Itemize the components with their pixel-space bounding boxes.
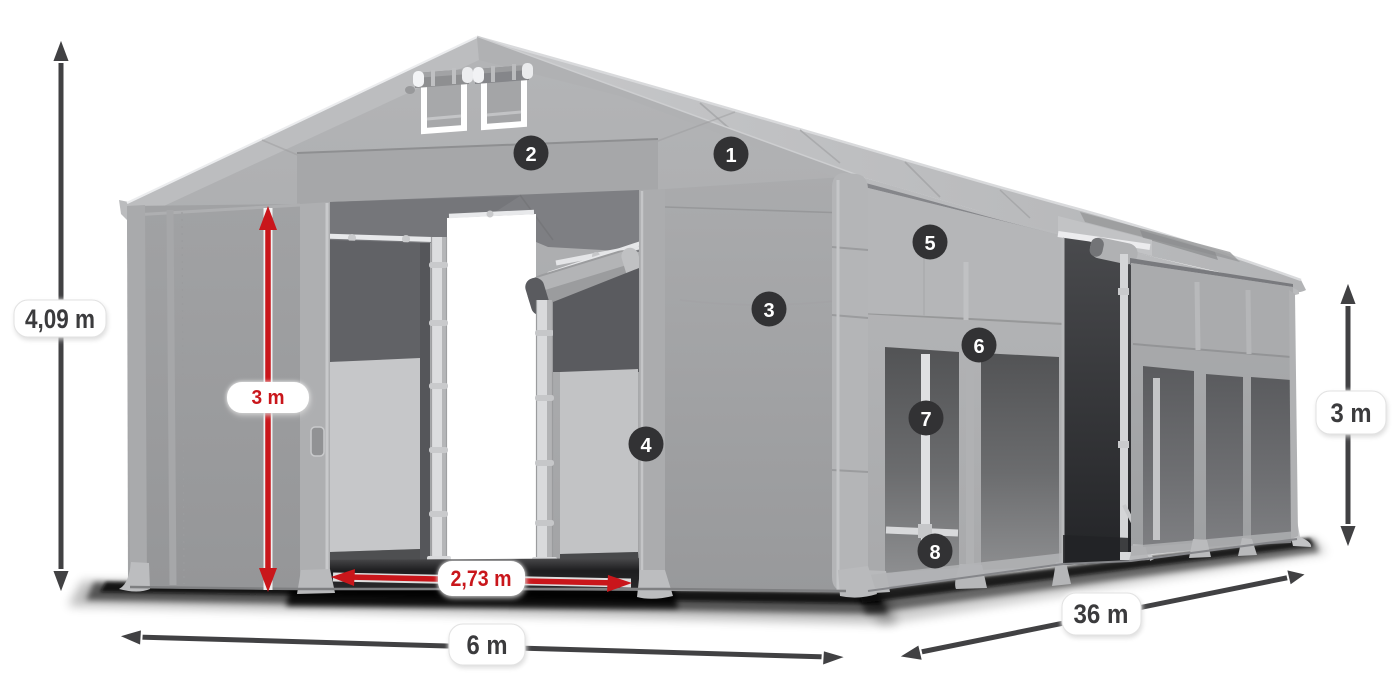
svg-text:3: 3 xyxy=(763,300,774,322)
svg-text:6 m: 6 m xyxy=(467,630,508,660)
svg-text:3 m: 3 m xyxy=(252,387,285,409)
svg-text:8: 8 xyxy=(929,542,940,564)
svg-text:7: 7 xyxy=(920,409,931,431)
svg-text:2: 2 xyxy=(525,144,536,166)
svg-text:6: 6 xyxy=(973,336,984,358)
svg-text:36 m: 36 m xyxy=(1074,599,1129,629)
svg-text:1: 1 xyxy=(725,145,736,167)
svg-text:3 m: 3 m xyxy=(1331,398,1372,428)
svg-text:2,73 m: 2,73 m xyxy=(451,566,512,591)
svg-text:4: 4 xyxy=(640,435,652,457)
svg-text:5: 5 xyxy=(924,233,935,255)
svg-text:4,09 m: 4,09 m xyxy=(25,304,95,334)
